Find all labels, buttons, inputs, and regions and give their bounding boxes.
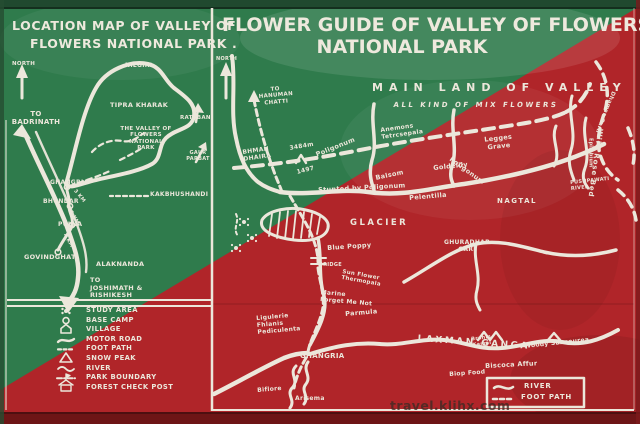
legend-item: FOOT PATH: [86, 344, 173, 354]
right-legend-river-label: RIVER: [524, 382, 552, 390]
label-rataban: RATABAN: [180, 115, 211, 121]
label-nilgiri: NILGIRI: [125, 62, 152, 69]
legend-item: PARK BOUNDARY: [86, 373, 173, 383]
legend-item: SNOW PEAK: [86, 354, 173, 364]
left-north-label: NORTH: [12, 61, 35, 67]
label-to-joshimath: TO JOSHIMATH & RISHIKESH: [90, 277, 143, 300]
right-map-title-line2: NATIONAL PARK: [222, 36, 582, 58]
legend-item: BASE CAMP: [86, 316, 173, 326]
right-map-title-line1: FLOWER GUIDE OF VALLEY OF FLOWERS: [222, 14, 634, 36]
label-ghangria: GHANGRIA: [50, 179, 88, 186]
label-govindghat: GOVINDGHAT: [24, 254, 76, 262]
label-nagtal: NAGTAL: [497, 197, 537, 205]
legend-item: FOREST CHECK POST: [86, 383, 173, 393]
label-ligulerie: Ligulerie Fhlanis Pediculenta: [256, 311, 301, 336]
left-map-title-line2: FLOWERS NATIONAL PARK .: [30, 36, 237, 51]
label-tipra-kharak: TIPRA KHARAK: [110, 102, 168, 110]
painted-map-sign: LOCATION MAP OF VALLEY OF FLOWERS NATION…: [0, 0, 640, 424]
label-kakbhushandi: KAKBHUSHANDI: [150, 191, 208, 198]
right-north-label: NORTH: [216, 57, 237, 63]
label-alaknanda: ALAKNANDA: [96, 261, 144, 269]
left-map-title-line1: LOCATION MAP OF VALLEY OF: [12, 18, 236, 33]
label-valley-of-flowers: THE VALLEY OF FLOWERS NATIONAL PARK: [116, 126, 176, 152]
label-gaur-parbat: GAUR PARBAT: [186, 151, 210, 163]
label-glacier: GLACIER: [350, 218, 408, 228]
label-all-kind-of-mix-flowers: ALL KIND OF MIX FLOWERS: [393, 101, 559, 109]
label-epilobium: Epilobium: [587, 138, 593, 168]
label-ghuradhar-gari: GHURADHAR GARI: [442, 239, 492, 253]
legend-item: MOTOR ROAD: [86, 335, 173, 345]
label-main-land-of-valley: MAIN LAND OF VALLEY: [372, 82, 627, 95]
legend-item: RIVER: [86, 364, 173, 374]
legend-item: STUDY AREA: [86, 306, 173, 316]
label-bhundar: BHUNDAR: [43, 198, 79, 205]
label-to-badrinath: TO BADRINATH: [4, 110, 68, 127]
label-bridge: BRIDGE: [319, 263, 342, 269]
label-ghangria-right: GHANGRIA: [300, 352, 344, 360]
label-pulna: PULNA: [58, 221, 82, 228]
left-legend-list: STUDY AREA BASE CAMP VILLAGE MOTOR ROAD …: [86, 306, 173, 392]
legend-item: VILLAGE: [86, 325, 173, 335]
label-arisema: Arisema: [295, 395, 325, 402]
motor-road-icon: [58, 339, 74, 342]
watermark-text: travel.klihx.com: [390, 398, 510, 413]
label-to-hanuman-chatti: TO HANUMAN CHATTI: [258, 85, 294, 107]
right-legend-foot-path-label: FOOT PATH: [521, 393, 572, 401]
